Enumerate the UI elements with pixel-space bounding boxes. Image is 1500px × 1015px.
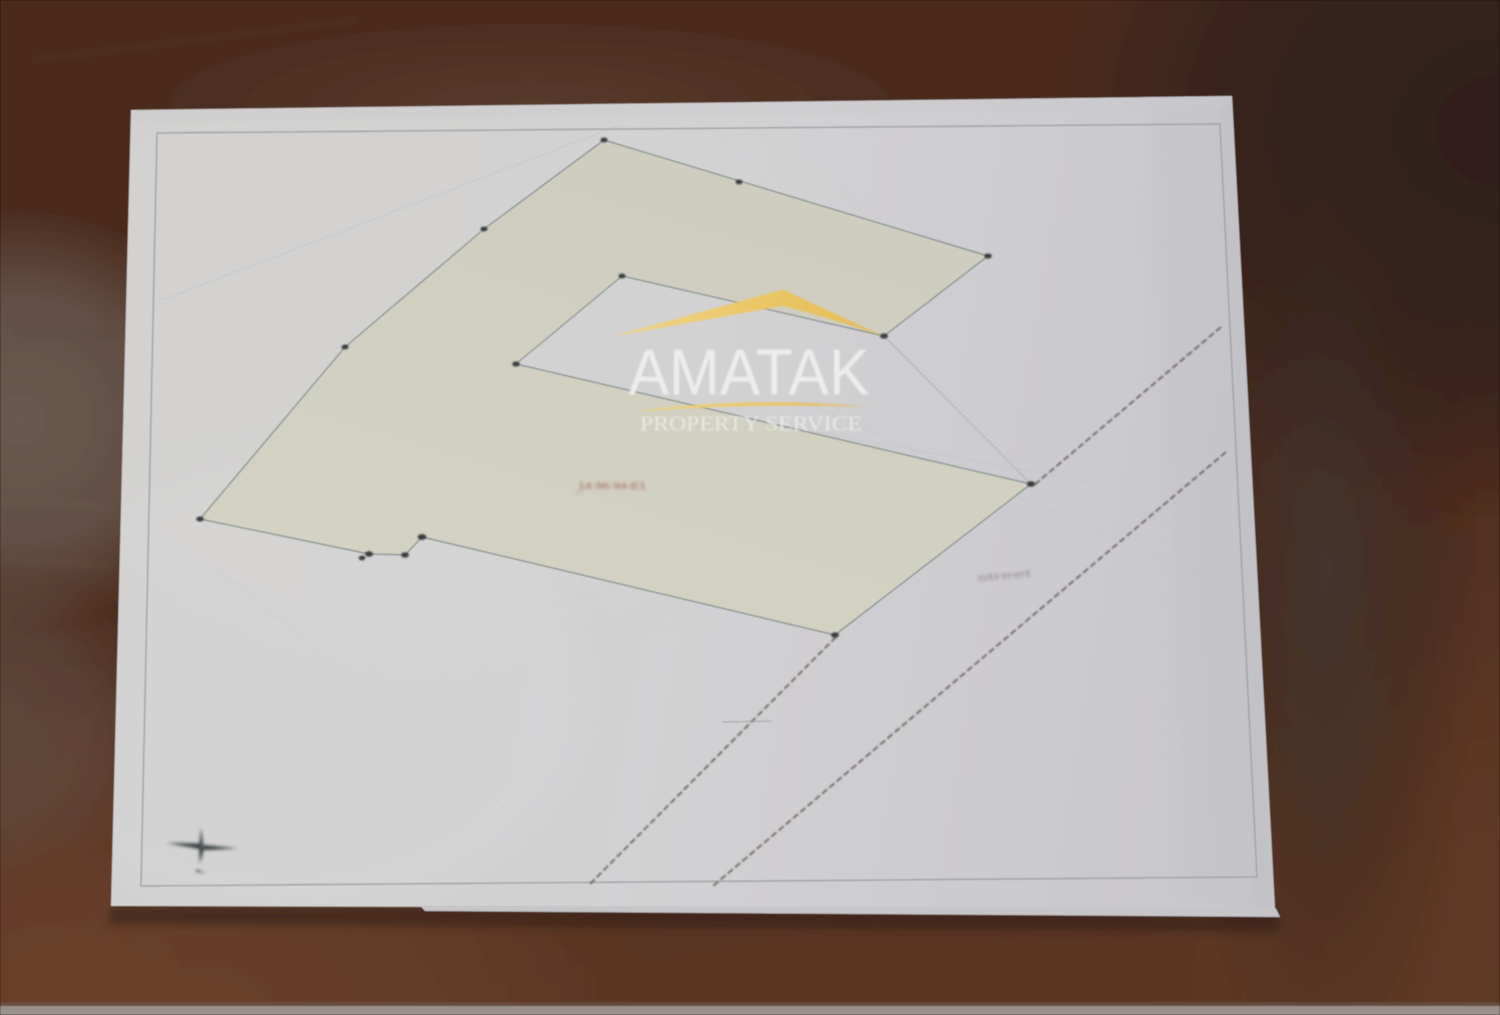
- svg-text:AMATAK: AMATAK: [629, 337, 870, 409]
- svg-text:14-96-94-E1: 14-96-94-E1: [578, 481, 646, 492]
- svg-text:PROPERTY SERVICE: PROPERTY SERVICE: [640, 412, 862, 436]
